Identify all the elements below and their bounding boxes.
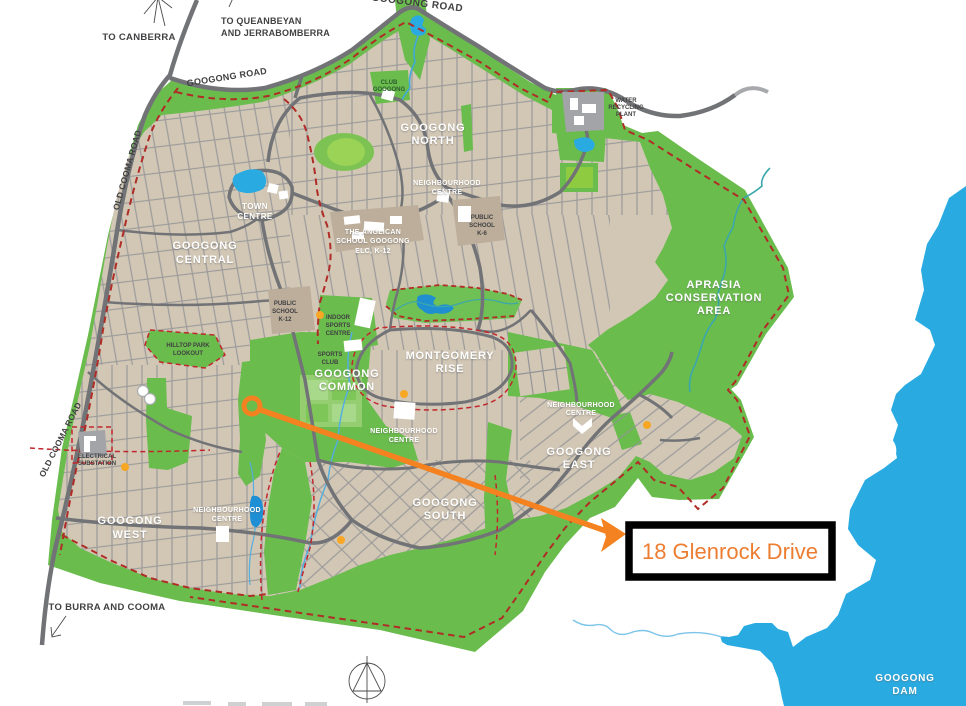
svg-text:THE ANGLICAN: THE ANGLICAN: [345, 229, 401, 236]
svg-text:NORTH: NORTH: [411, 135, 454, 147]
svg-text:CENTRE: CENTRE: [237, 212, 273, 221]
svg-text:GOOGONG: GOOGONG: [315, 368, 380, 380]
svg-text:TO QUEANBEYAN: TO QUEANBEYAN: [221, 16, 302, 26]
svg-text:GOOGONG: GOOGONG: [373, 87, 406, 93]
svg-text:AND JERRABOMBERRA: AND JERRABOMBERRA: [221, 28, 330, 38]
svg-text:WEST: WEST: [113, 529, 148, 541]
svg-text:COMMON: COMMON: [319, 381, 375, 393]
svg-text:SCHOOL: SCHOOL: [272, 309, 298, 315]
svg-text:K-12: K-12: [278, 317, 292, 323]
svg-text:CENTRE: CENTRE: [566, 410, 597, 417]
svg-text:APRASIA: APRASIA: [686, 279, 741, 291]
svg-text:CENTRE: CENTRE: [212, 516, 243, 523]
svg-text:NEIGHBOURHOOD: NEIGHBOURHOOD: [370, 428, 438, 435]
svg-text:CENTRAL: CENTRAL: [176, 254, 234, 266]
svg-text:GOOGONG: GOOGONG: [98, 515, 163, 527]
svg-text:TO BURRA AND COOMA: TO BURRA AND COOMA: [49, 602, 166, 613]
svg-text:EAST: EAST: [563, 459, 596, 471]
svg-text:SCHOOL GOOGONG: SCHOOL GOOGONG: [336, 238, 410, 245]
svg-text:GOOGONG: GOOGONG: [413, 497, 478, 509]
svg-text:MONTGOMERY: MONTGOMERY: [406, 350, 495, 362]
svg-text:NEIGHBOURHOOD: NEIGHBOURHOOD: [193, 507, 261, 514]
svg-text:GOOGONG: GOOGONG: [401, 122, 466, 134]
svg-text:SPORTS: SPORTS: [318, 352, 343, 358]
svg-text:HILLTOP PARK: HILLTOP PARK: [166, 343, 210, 349]
svg-text:CLUB: CLUB: [381, 80, 398, 86]
svg-text:CENTRE: CENTRE: [432, 189, 463, 196]
svg-text:SUBSTATION: SUBSTATION: [78, 461, 116, 467]
svg-text:PLANT: PLANT: [616, 112, 636, 118]
svg-text:GOOGONG: GOOGONG: [173, 240, 238, 252]
svg-text:GOOGONG: GOOGONG: [875, 673, 935, 684]
svg-text:SOUTH: SOUTH: [424, 510, 467, 522]
svg-text:PUBLIC: PUBLIC: [471, 215, 494, 221]
svg-text:RECYCLING: RECYCLING: [608, 105, 644, 111]
svg-text:GOOGONG: GOOGONG: [547, 446, 612, 458]
svg-text:NEIGHBOURHOOD: NEIGHBOURHOOD: [413, 180, 481, 187]
svg-text:CONSERVATION: CONSERVATION: [666, 292, 762, 304]
svg-text:18 Glenrock Drive: 18 Glenrock Drive: [642, 539, 818, 564]
svg-text:CLUB: CLUB: [322, 360, 339, 366]
svg-text:RISE: RISE: [436, 363, 465, 375]
svg-text:NEIGHBOURHOOD: NEIGHBOURHOOD: [547, 402, 615, 409]
svg-text:K-6: K-6: [477, 231, 487, 237]
svg-text:ELECTRICAL: ELECTRICAL: [78, 454, 116, 460]
svg-text:CENTRE: CENTRE: [326, 331, 351, 337]
svg-text:SPORTS: SPORTS: [326, 323, 351, 329]
svg-text:INDOOR: INDOOR: [326, 315, 351, 321]
svg-text:CENTRE: CENTRE: [389, 437, 420, 444]
svg-text:LOOKOUT: LOOKOUT: [173, 351, 203, 357]
svg-text:PUBLIC: PUBLIC: [274, 301, 297, 307]
svg-text:TOWN: TOWN: [242, 202, 268, 211]
svg-text:DAM: DAM: [892, 686, 917, 697]
svg-text:AREA: AREA: [697, 305, 731, 317]
svg-text:TO CANBERRA: TO CANBERRA: [102, 32, 175, 43]
svg-text:SCHOOL: SCHOOL: [469, 223, 495, 229]
svg-text:WATER: WATER: [615, 98, 637, 104]
svg-text:ELC, K-12: ELC, K-12: [355, 248, 391, 255]
